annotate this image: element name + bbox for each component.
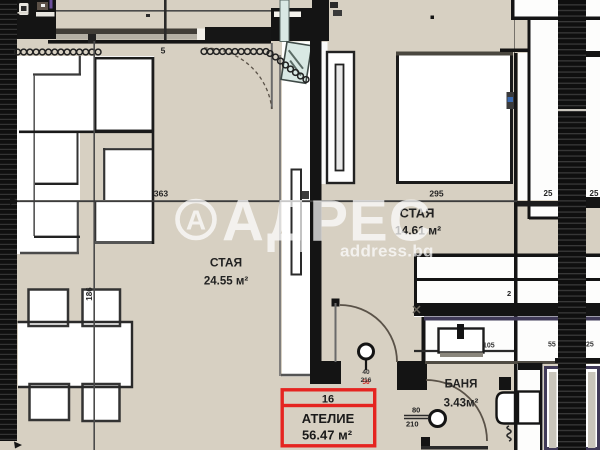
svg-text:40: 40 bbox=[362, 369, 370, 376]
svg-text:24.55 м²: 24.55 м² bbox=[204, 276, 248, 288]
svg-text:СТАЯ: СТАЯ bbox=[210, 256, 242, 270]
svg-text:АТЕЛИЕ: АТЕЛИЕ bbox=[302, 411, 355, 426]
svg-text:363: 363 bbox=[154, 189, 168, 199]
svg-text:25: 25 bbox=[544, 189, 553, 198]
svg-text:5: 5 bbox=[161, 46, 166, 56]
svg-text:25: 25 bbox=[586, 342, 594, 349]
svg-text:186: 186 bbox=[85, 287, 94, 301]
svg-text:56.47 м²: 56.47 м² bbox=[302, 428, 353, 443]
svg-text:25: 25 bbox=[590, 189, 599, 198]
svg-text:address.bg: address.bg bbox=[340, 242, 434, 261]
svg-text:3.43м²: 3.43м² bbox=[444, 398, 479, 410]
svg-text:16: 16 bbox=[322, 394, 334, 406]
svg-text:216: 216 bbox=[361, 377, 372, 384]
svg-text:2: 2 bbox=[507, 289, 511, 298]
svg-text:80: 80 bbox=[412, 406, 420, 415]
svg-text:55: 55 bbox=[548, 342, 556, 349]
svg-text:А: А bbox=[186, 205, 206, 236]
svg-text:210: 210 bbox=[406, 420, 419, 429]
svg-text:105: 105 bbox=[483, 343, 495, 350]
svg-text:БАНЯ: БАНЯ bbox=[445, 379, 478, 391]
